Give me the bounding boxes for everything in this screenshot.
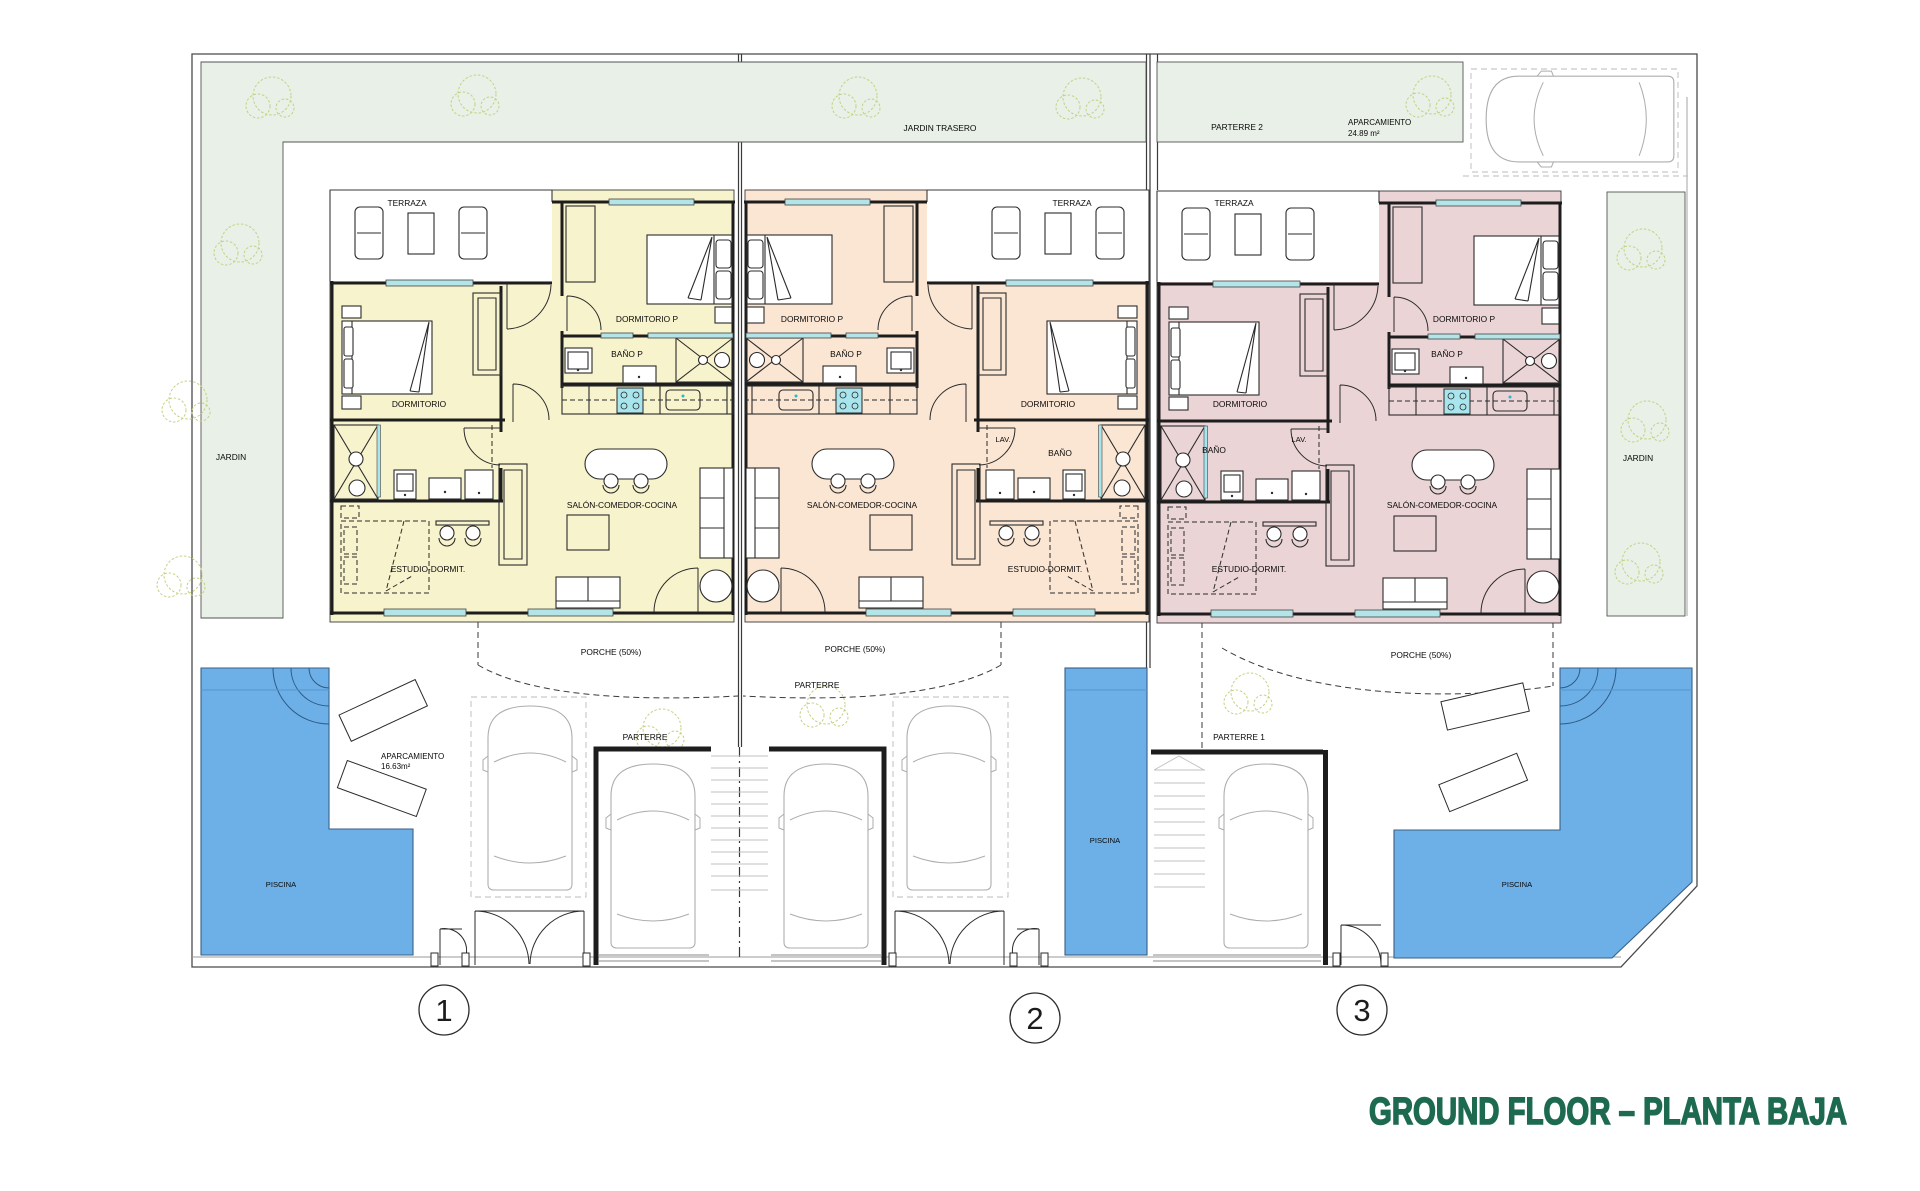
svg-text:PARTERRE 1: PARTERRE 1: [1213, 732, 1265, 742]
svg-text:SALÓN-COMEDOR-COCINA: SALÓN-COMEDOR-COCINA: [807, 500, 918, 510]
svg-text:LAV.: LAV.: [1291, 435, 1306, 444]
svg-text:BAÑO: BAÑO: [1048, 448, 1072, 458]
svg-text:TERRAZA: TERRAZA: [1214, 198, 1254, 208]
svg-text:PISCINA: PISCINA: [1502, 880, 1533, 889]
svg-text:APARCAMIENTO: APARCAMIENTO: [381, 752, 444, 761]
svg-text:GROUND FLOOR – PLANTA BAJA: GROUND FLOOR – PLANTA BAJA: [1369, 1091, 1847, 1133]
svg-text:JARDIN TRASERO: JARDIN TRASERO: [904, 123, 977, 133]
svg-text:TERRAZA: TERRAZA: [387, 198, 427, 208]
svg-text:DORMITORIO P: DORMITORIO P: [616, 314, 679, 324]
svg-text:DORMITORIO P: DORMITORIO P: [781, 314, 844, 324]
svg-text:PISCINA: PISCINA: [266, 880, 297, 889]
svg-text:16.63m²: 16.63m²: [381, 762, 411, 771]
svg-text:PARTERRE: PARTERRE: [795, 680, 840, 690]
svg-text:DORMITORIO: DORMITORIO: [1021, 399, 1076, 409]
svg-text:DORMITORIO P: DORMITORIO P: [1433, 314, 1496, 324]
svg-text:1: 1: [435, 993, 452, 1028]
svg-text:ESTUDIO-DORMIT.: ESTUDIO-DORMIT.: [1008, 564, 1082, 574]
svg-text:PORCHE (50%): PORCHE (50%): [825, 644, 886, 654]
svg-text:24.89 m²: 24.89 m²: [1348, 129, 1380, 138]
svg-text:JARDIN: JARDIN: [1623, 453, 1653, 463]
svg-text:ESTUDIO-DORMIT.: ESTUDIO-DORMIT.: [1212, 564, 1286, 574]
svg-text:JARDIN: JARDIN: [216, 452, 246, 462]
svg-text:TERRAZA: TERRAZA: [1052, 198, 1092, 208]
svg-text:BAÑO: BAÑO: [1202, 445, 1226, 455]
svg-text:APARCAMIENTO: APARCAMIENTO: [1348, 118, 1411, 127]
svg-text:BAÑO P: BAÑO P: [830, 349, 862, 359]
svg-text:PARTERRE 2: PARTERRE 2: [1211, 122, 1263, 132]
svg-text:PARTERRE: PARTERRE: [623, 732, 668, 742]
svg-text:BAÑO P: BAÑO P: [1431, 349, 1463, 359]
svg-text:SALÓN-COMEDOR-COCINA: SALÓN-COMEDOR-COCINA: [567, 500, 678, 510]
svg-text:PISCINA: PISCINA: [1090, 836, 1121, 845]
svg-text:PORCHE (50%): PORCHE (50%): [581, 647, 642, 657]
svg-text:PORCHE (50%): PORCHE (50%): [1391, 650, 1452, 660]
svg-text:BAÑO P: BAÑO P: [611, 349, 643, 359]
svg-text:DORMITORIO: DORMITORIO: [1213, 399, 1268, 409]
svg-text:LAV.: LAV.: [995, 435, 1010, 444]
svg-text:SALÓN-COMEDOR-COCINA: SALÓN-COMEDOR-COCINA: [1387, 500, 1498, 510]
svg-text:3: 3: [1353, 993, 1370, 1028]
svg-text:ESTUDIO-DORMIT.: ESTUDIO-DORMIT.: [391, 564, 465, 574]
svg-text:2: 2: [1026, 1001, 1043, 1036]
svg-text:DORMITORIO: DORMITORIO: [392, 399, 447, 409]
